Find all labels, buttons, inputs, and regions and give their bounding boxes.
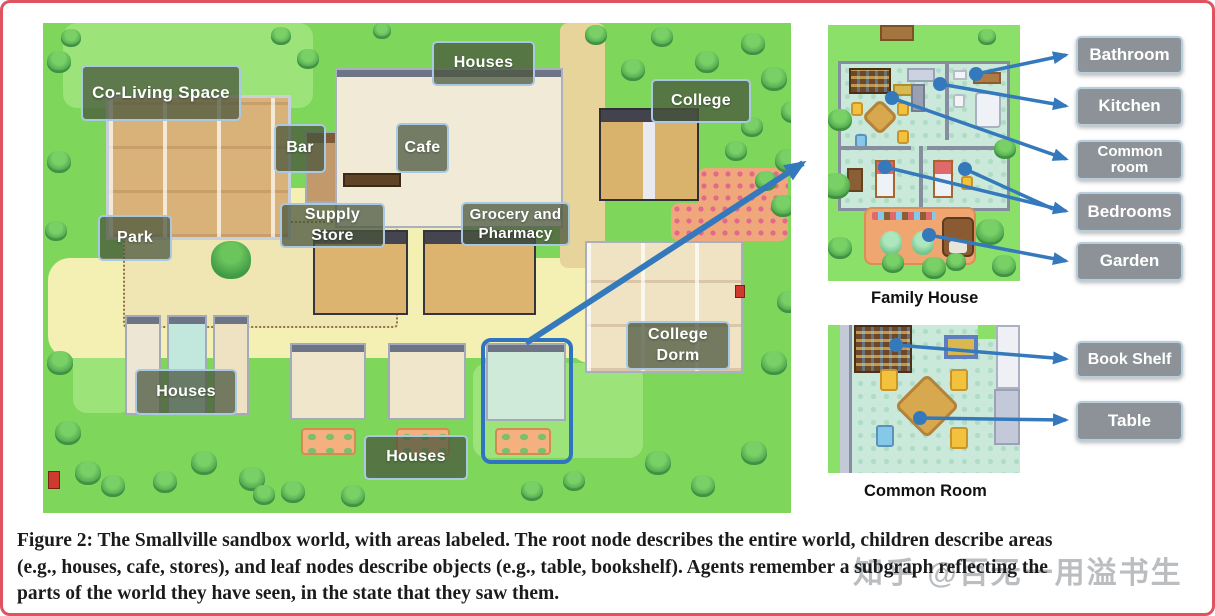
- chair-icon: [950, 369, 968, 391]
- map-label-cafe: Cafe: [396, 123, 449, 173]
- tree-icon: [47, 51, 71, 73]
- label-text: Garden: [1100, 252, 1160, 271]
- chair-icon: [897, 102, 909, 116]
- caption-line: parts of the world they have seen, in th…: [17, 583, 1211, 610]
- red-item-icon: [735, 285, 745, 298]
- map-label-text: Co-Living Space: [92, 82, 230, 104]
- figure-caption: Figure 2: The Smallville sandbox world, …: [17, 530, 1211, 610]
- map-label-coliving: Co-Living Space: [81, 65, 241, 121]
- tree-icon: [621, 59, 645, 81]
- tree-icon: [992, 255, 1016, 277]
- kitchen-counter-icon: [907, 68, 935, 82]
- family-house-inset: [828, 25, 1020, 281]
- common-room-inset: [828, 325, 1020, 473]
- bookshelf-icon: [849, 68, 891, 94]
- caption-line: Figure 2: The Smallville sandbox world, …: [17, 530, 1211, 557]
- label-bathroom: Bathroom: [1076, 36, 1183, 74]
- map-label-text: Houses: [386, 447, 446, 468]
- label-text: Kitchen: [1098, 97, 1160, 116]
- map-label-text: Houses: [454, 53, 514, 74]
- bookshelf-icon: [854, 325, 912, 373]
- tree-icon: [781, 101, 791, 123]
- red-cart-icon: [48, 471, 60, 489]
- rug-icon: [944, 335, 978, 359]
- tree-icon: [775, 149, 791, 173]
- label-text: Table: [1108, 412, 1151, 431]
- tree-icon: [191, 451, 217, 475]
- wall: [919, 146, 923, 208]
- map-label-houses-bottom: Houses: [364, 435, 468, 480]
- map-label-text: Grocery and Pharmacy: [465, 205, 566, 244]
- tree-icon: [741, 33, 765, 55]
- tree-icon: [741, 441, 767, 465]
- label-common-room: Common room: [1076, 140, 1183, 180]
- tree-icon: [281, 481, 305, 503]
- map-label-text: Bar: [286, 138, 314, 159]
- tree-icon: [761, 67, 787, 91]
- chair-icon: [961, 176, 973, 190]
- flower-boxes: [872, 212, 936, 220]
- tree-icon: [211, 241, 251, 279]
- tree-icon: [976, 219, 1004, 245]
- tree-icon: [101, 475, 125, 497]
- tree-icon: [994, 139, 1016, 159]
- tree-icon: [585, 25, 607, 45]
- gazebo-icon: [942, 217, 974, 257]
- tree-icon: [47, 151, 71, 173]
- gazebo-interior: [949, 241, 967, 253]
- wall: [841, 146, 911, 150]
- tree-icon: [253, 485, 275, 505]
- counter-icon: [994, 389, 1020, 445]
- tree-icon: [271, 27, 291, 45]
- map-label-grocery-pharmacy: Grocery and Pharmacy: [461, 202, 570, 246]
- common-room-caption: Common Room: [864, 482, 987, 501]
- tree-icon: [882, 253, 904, 273]
- map-label-bar: Bar: [274, 124, 326, 173]
- tree-icon: [61, 29, 81, 47]
- chair-icon: [880, 369, 898, 391]
- tree-icon: [691, 475, 715, 497]
- tree-icon: [761, 351, 787, 375]
- label-table: Table: [1076, 401, 1183, 441]
- tree-icon: [651, 27, 673, 47]
- wall: [840, 325, 852, 473]
- label-text: Bathroom: [1089, 46, 1169, 65]
- label-text: Book Shelf: [1088, 351, 1172, 369]
- figure-2: Co-Living Space Houses Bar Cafe College …: [0, 0, 1215, 616]
- map-label-college: College: [651, 79, 751, 123]
- tree-icon: [828, 109, 852, 131]
- label-kitchen: Kitchen: [1076, 87, 1183, 126]
- chair-icon: [851, 102, 863, 116]
- tree-icon: [755, 171, 777, 191]
- bed-icon: [875, 160, 895, 198]
- label-bedrooms: Bedrooms: [1076, 192, 1183, 232]
- map-label-text: Park: [117, 228, 153, 249]
- label-text: Bedrooms: [1087, 203, 1171, 222]
- chair-icon: [897, 130, 909, 144]
- tree-icon: [978, 29, 996, 45]
- tree-icon: [725, 141, 747, 161]
- garden-tree-icon: [912, 231, 934, 255]
- building-house: [388, 343, 466, 420]
- family-house-highlight-box: [481, 338, 573, 464]
- crates-icon: [880, 25, 914, 41]
- map-label-houses-top: Houses: [432, 41, 535, 86]
- tree-icon: [373, 23, 391, 39]
- label-book-shelf: Book Shelf: [1076, 341, 1183, 378]
- tree-icon: [563, 471, 585, 491]
- caption-line: (e.g., houses, cafe, stores), and leaf n…: [17, 557, 1211, 584]
- tree-icon: [45, 221, 67, 241]
- tree-icon: [946, 253, 966, 271]
- tile-column: [996, 325, 1020, 389]
- tree-icon: [521, 481, 543, 501]
- sink-icon: [953, 70, 967, 80]
- tree-icon: [75, 461, 101, 485]
- label-text: Common room: [1098, 144, 1162, 177]
- wall: [945, 64, 949, 140]
- house-floor: [838, 61, 1010, 211]
- tree-icon: [828, 237, 852, 259]
- map-label-supply-store: Supply Store: [280, 203, 385, 248]
- tree-icon: [47, 351, 73, 375]
- map-label-text: Supply Store: [284, 205, 381, 247]
- tree-icon: [695, 51, 719, 73]
- toilet-icon: [953, 94, 965, 108]
- chair-icon: [950, 427, 968, 449]
- bed-icon: [933, 160, 953, 198]
- map-label-college-dorm: College Dorm: [626, 321, 730, 370]
- map-label-park: Park: [98, 215, 172, 261]
- map-label-text: Cafe: [405, 138, 441, 159]
- patio: [301, 428, 356, 455]
- building-house: [290, 343, 366, 420]
- tree-icon: [153, 471, 177, 493]
- tree-icon: [922, 257, 946, 279]
- map-label-houses-left: Houses: [135, 369, 237, 415]
- tree-icon: [645, 451, 671, 475]
- table-icon: [862, 99, 899, 136]
- bar-counter: [343, 173, 401, 187]
- tree-icon: [297, 49, 319, 69]
- tree-icon: [341, 485, 365, 507]
- map-label-text: College Dorm: [630, 325, 726, 367]
- tree-icon: [777, 291, 791, 313]
- tree-icon: [55, 421, 81, 445]
- garden-tree-icon: [880, 231, 902, 255]
- tree-icon: [771, 195, 791, 217]
- stove-icon: [911, 84, 925, 112]
- family-house-caption: Family House: [871, 289, 978, 308]
- desk-icon: [973, 72, 1001, 84]
- map-label-text: Houses: [156, 382, 216, 403]
- chair-icon: [876, 425, 894, 447]
- label-garden: Garden: [1076, 242, 1183, 281]
- grass-strip: [828, 325, 840, 473]
- map-label-text: College: [671, 91, 731, 112]
- smallville-map: Co-Living Space Houses Bar Cafe College …: [43, 23, 791, 513]
- bathtub-icon: [975, 92, 1001, 128]
